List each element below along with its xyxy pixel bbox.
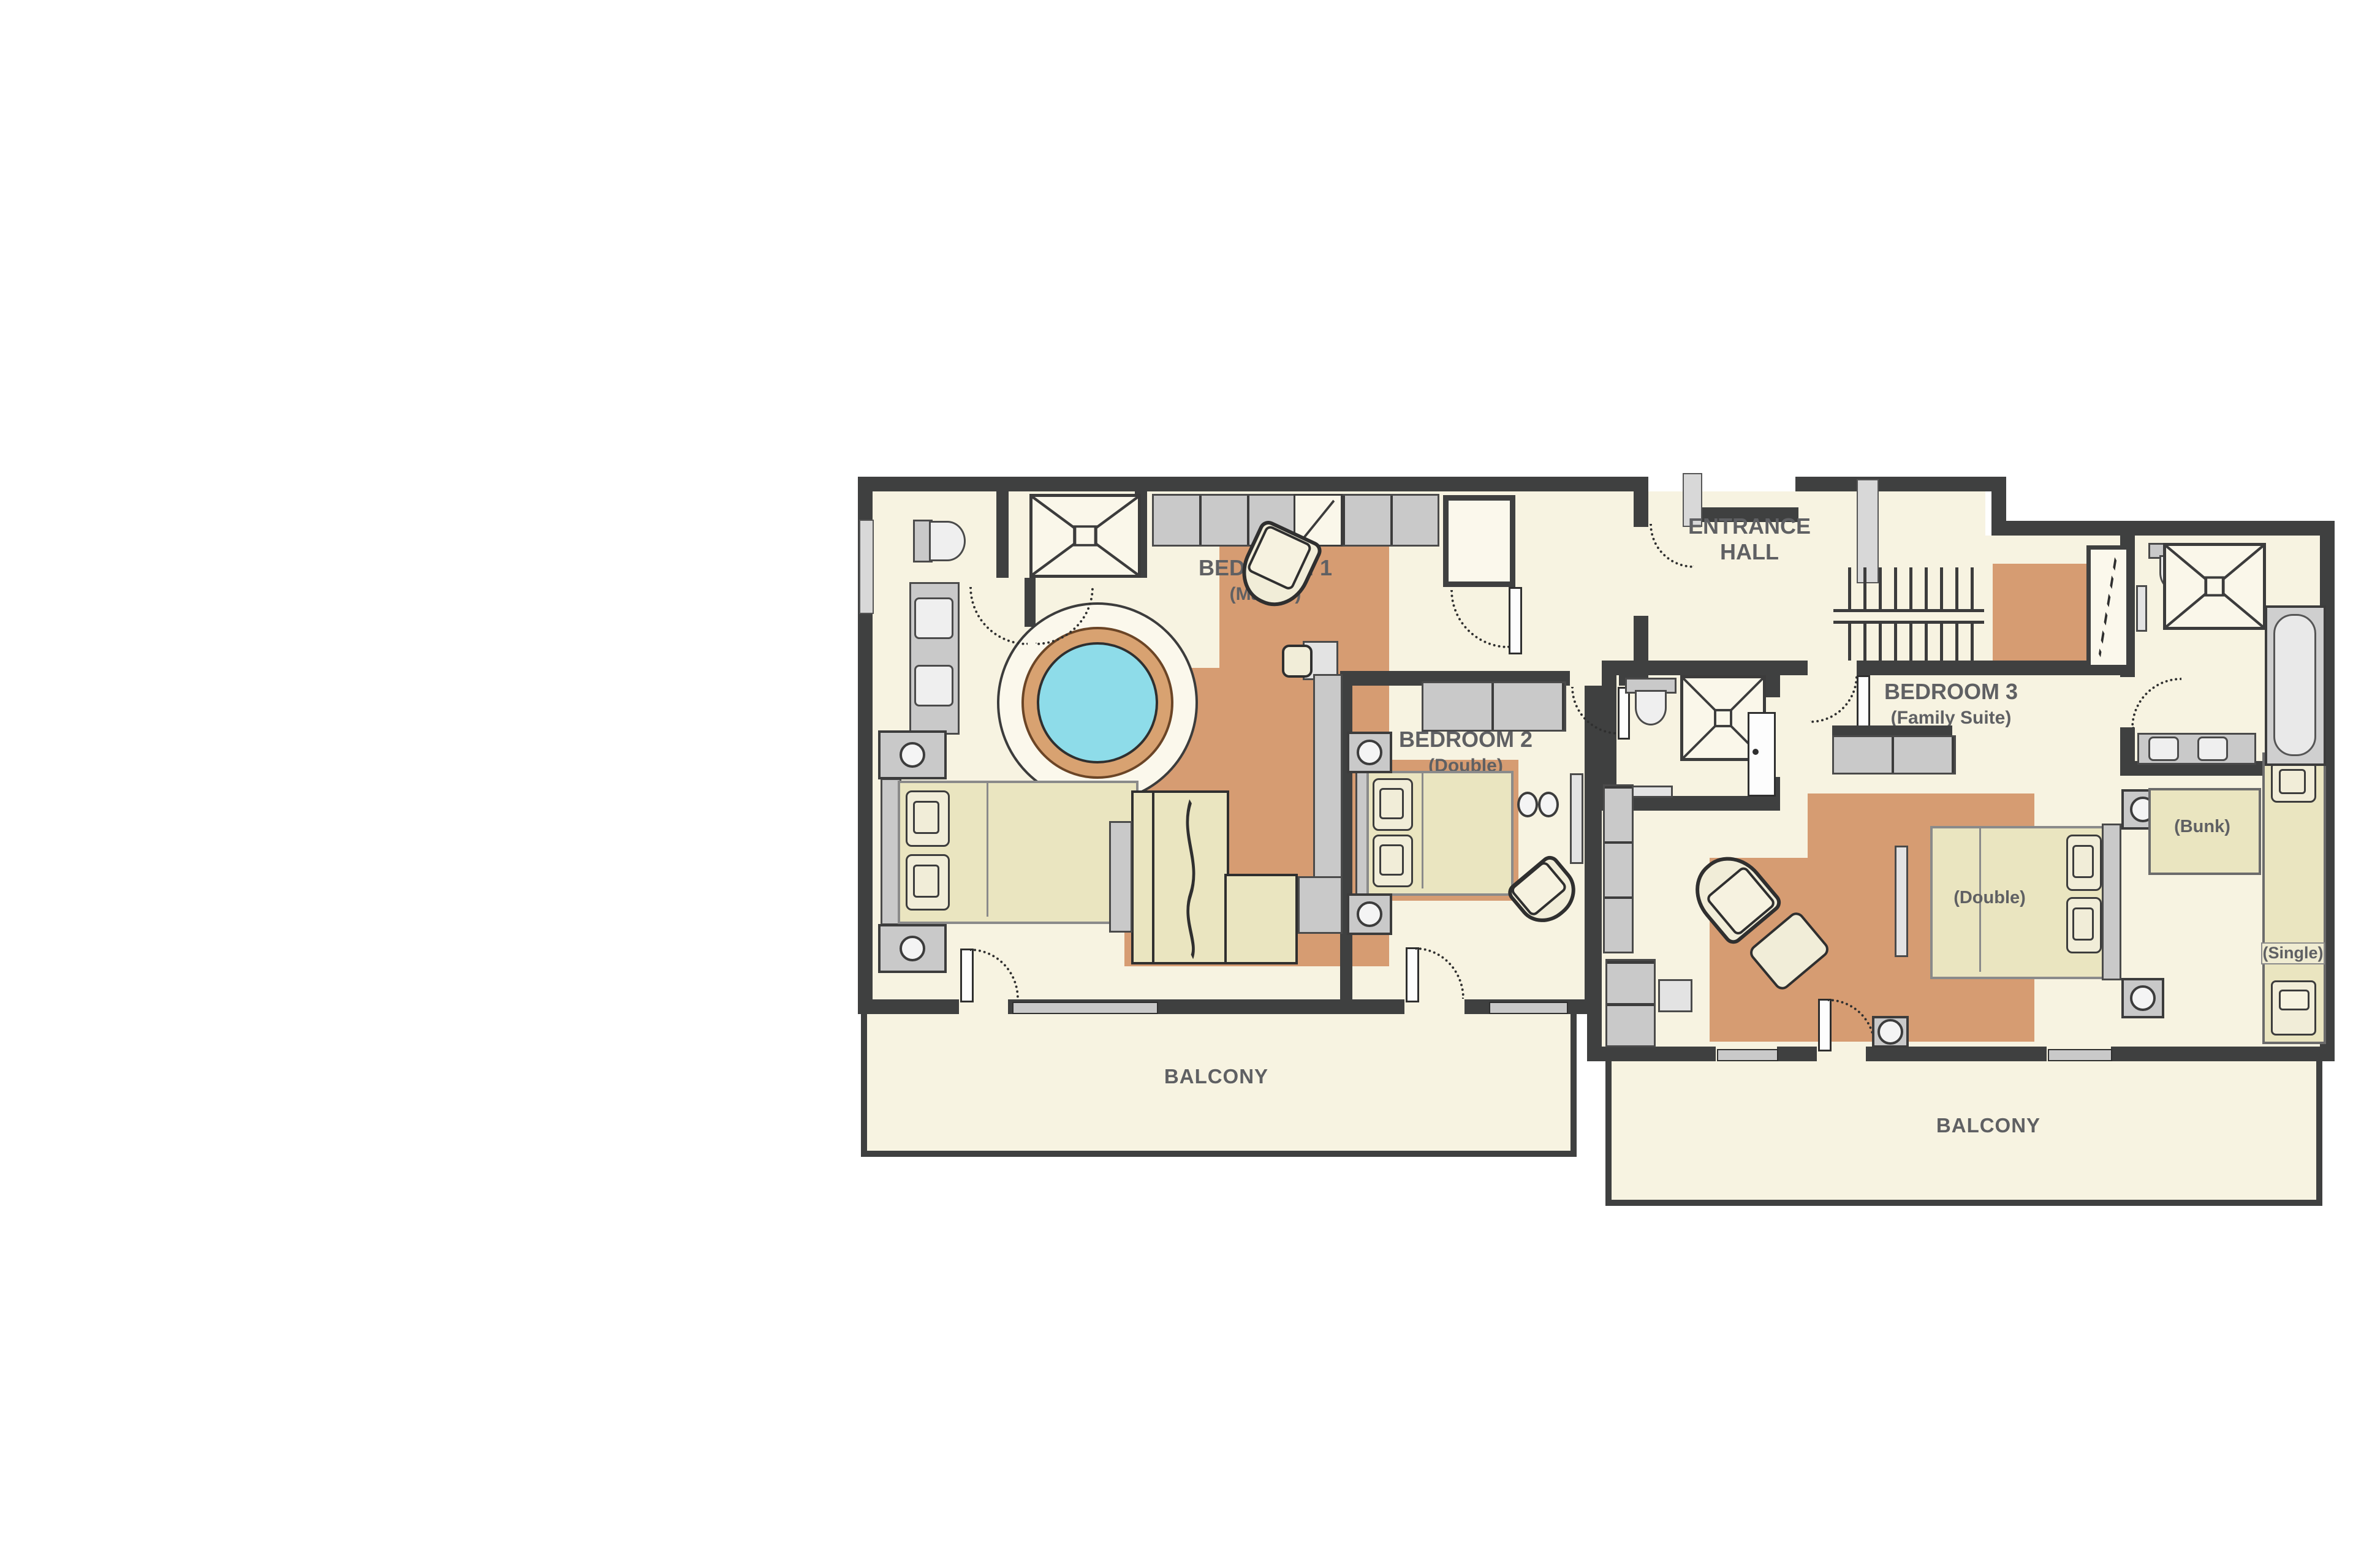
vanity3-sink-right [2197, 737, 2228, 761]
bedroom1-nightstand-top [878, 730, 947, 779]
bedroom3-wardrobe-top [1832, 725, 1952, 735]
wall-bottom-right-a [1587, 1047, 1716, 1061]
bedroom2-wardrobe [1422, 681, 1566, 732]
wall-bottom-left-a [858, 999, 959, 1014]
bedroom1-sheet-line [987, 783, 988, 917]
wall-bedroom2-right [1585, 686, 1602, 1014]
wall-hall-bedroom3-b [1857, 661, 2120, 675]
bedroom2-sheet-line [1422, 773, 1423, 888]
bedroom1-nightstand-bottom [878, 924, 947, 973]
bedroom2-nightstand-top [1347, 732, 1392, 773]
bedroom3-bed-label: (Double) [1931, 887, 2048, 908]
bedroom3-stool [1658, 979, 1692, 1012]
bath3-wall-shelf [2136, 585, 2147, 632]
bedroom3-headboard [2102, 824, 2121, 980]
window-bedroom3-balcony-b [2048, 1049, 2112, 1061]
toilet2-bowl [1635, 690, 1667, 725]
sofa-seat [1152, 790, 1229, 964]
bedroom2-pillow-top [1373, 778, 1413, 831]
window-bedroom2-balcony [1489, 1002, 1568, 1014]
wall-bottom-right-b [1777, 1047, 1817, 1061]
bedroom3-left-cabinet [1603, 784, 1634, 953]
wall-top-bath-block [2006, 521, 2335, 536]
wall-top-right-a [1795, 477, 1991, 491]
bedroom2-stool-a [1517, 792, 1538, 817]
floor-plan: BALCONY BALCONY [0, 0, 2353, 1568]
bedroom1-stool [1282, 645, 1313, 678]
balcony-right-label: BALCONY [1896, 1114, 2080, 1138]
single-bed-pillow [2271, 761, 2316, 803]
shower3 [2163, 543, 2266, 630]
bedroom3-pillow-top [2066, 835, 2102, 891]
bunk-bed-label: (Bunk) [2148, 816, 2256, 837]
bedroom1-pillow-top [906, 790, 950, 847]
entrance-hall-label: ENTRANCE HALL [1667, 513, 1832, 566]
sofa-chaise [1224, 874, 1298, 964]
bedroom1-pillow-bottom [906, 854, 950, 911]
single-bed-blanket [2271, 980, 2316, 1036]
vanity1-sink-bottom [914, 665, 953, 706]
bedroom3-tall-cabinet [1605, 959, 1656, 1047]
wall-top-left-building [858, 477, 1648, 491]
vanity3-sink-left [2148, 737, 2179, 761]
bedroom3-wall-shelf [1895, 846, 1908, 957]
bathtub-inner [2273, 614, 2316, 756]
stairs-handrail [1833, 609, 1984, 624]
bedroom3-pillow-bottom [2066, 897, 2102, 953]
bedroom1-duct-column [1443, 495, 1515, 587]
toilet1-bowl [929, 521, 966, 561]
bedroom3-label: BEDROOM 3 [1859, 679, 2043, 705]
shower1 [1029, 494, 1141, 578]
showerroom-door-handle [1752, 749, 1759, 755]
bedroom3-wall-light [1872, 1016, 1909, 1048]
window-left-wall [859, 520, 874, 614]
wall-showerroom-right-a [1765, 661, 1780, 697]
balcony-left-label: BALCONY [1124, 1065, 1308, 1089]
bedroom2-door-leaf [1618, 687, 1630, 740]
wall-ensuite-a [996, 491, 1009, 578]
coffee-table [1109, 821, 1132, 933]
stair-closet [2086, 545, 2131, 669]
vanity1-sink-top [914, 597, 953, 639]
single-bed-label: (Single) [2261, 942, 2325, 964]
hot-tub-water [1037, 642, 1158, 763]
showerroom-door-leaf [1748, 712, 1776, 797]
bedroom2-pillow-bottom [1373, 835, 1413, 887]
bedroom1-door-leaf [1509, 587, 1522, 654]
bedroom2-stool-b [1538, 792, 1559, 817]
bedroom1-cabinet-low [1298, 876, 1343, 934]
stair-landing [1993, 564, 2086, 661]
window-bedroom1-balcony [1012, 1002, 1158, 1014]
wall-bottom-right-c [1866, 1047, 2047, 1061]
bedroom2-nightstand-bottom [1347, 893, 1392, 935]
bedroom3-nightstand-bottom [2121, 978, 2164, 1018]
wall-hall-top [1634, 507, 1648, 522]
bedroom2-wall-shelf [1570, 773, 1583, 864]
window-bedroom3-balcony-a [1717, 1049, 1778, 1061]
bedroom3-wardrobe [1832, 735, 1956, 775]
wall-top-step [1991, 477, 2006, 536]
wall-bottom-right-d [2111, 1047, 2335, 1061]
